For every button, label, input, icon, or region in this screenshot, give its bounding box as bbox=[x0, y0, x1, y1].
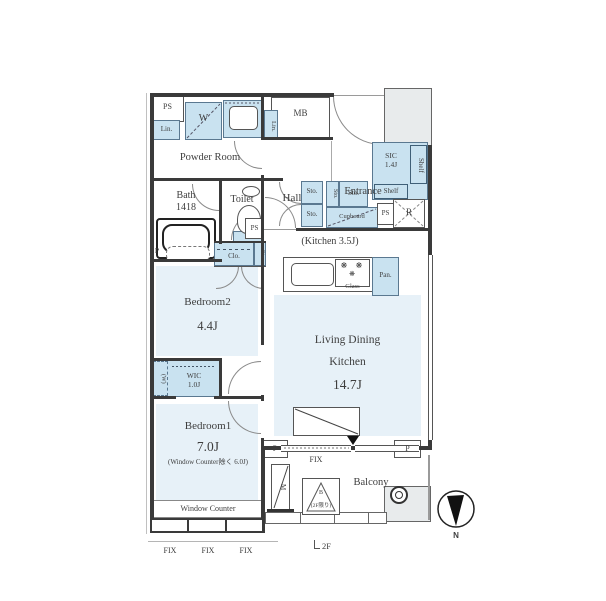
entrance-door-arc bbox=[333, 96, 382, 145]
burner-icon: ❋ bbox=[353, 261, 365, 270]
bedroom2-floor bbox=[156, 266, 258, 356]
wall bbox=[150, 396, 176, 399]
hatch-note: (2F限り) bbox=[302, 503, 340, 509]
mullion bbox=[262, 518, 265, 533]
sic-size: 1.4J bbox=[385, 160, 397, 169]
sto-label: Sto. bbox=[255, 245, 265, 264]
fix-label: FIX bbox=[152, 546, 188, 555]
bedroom1-size: 7.0J bbox=[158, 439, 258, 455]
bedroom2-door-arc bbox=[228, 361, 261, 394]
ps-label: PS bbox=[245, 224, 264, 232]
partition-base bbox=[267, 509, 294, 512]
window-band-east bbox=[428, 255, 433, 440]
floor-marker: 2F bbox=[322, 542, 342, 552]
wic-size: 1.0J bbox=[188, 380, 200, 389]
wall bbox=[219, 178, 222, 244]
mullion bbox=[187, 518, 189, 533]
linen-label: Lin. bbox=[265, 113, 277, 139]
bath-text: Bath bbox=[177, 190, 196, 201]
mullion bbox=[150, 518, 152, 533]
refrigerator-label: R bbox=[393, 207, 425, 217]
fix-label: FIX bbox=[228, 546, 264, 555]
compass bbox=[435, 489, 479, 535]
bedroom1-label: Bedroom1 bbox=[158, 420, 258, 433]
wall bbox=[261, 178, 264, 244]
kitchen-note: (Kitchen 3.5J) bbox=[275, 236, 385, 248]
entrance-threshold bbox=[334, 95, 384, 96]
balcony-label: Balcony bbox=[336, 477, 406, 489]
ldk-label-line1: Living Dining bbox=[280, 334, 415, 347]
ps-label: PS bbox=[151, 102, 184, 111]
vanity-sink bbox=[229, 106, 258, 130]
wall bbox=[296, 228, 431, 231]
ldk-size: 14.7J bbox=[280, 377, 415, 393]
burner-icon: ❋ bbox=[346, 270, 358, 278]
exterior-line bbox=[146, 93, 147, 534]
kitchen-sink bbox=[291, 263, 334, 286]
doorway-threshold bbox=[264, 229, 296, 230]
shelf-label: Shelf bbox=[412, 148, 425, 182]
wall bbox=[150, 93, 154, 518]
window-line bbox=[150, 518, 265, 520]
window-counter-label: Window Counter bbox=[153, 504, 263, 513]
direction-marker bbox=[347, 436, 359, 445]
pipe-label: P bbox=[394, 444, 421, 453]
toilet-label: Toilet bbox=[222, 194, 262, 206]
wall bbox=[428, 145, 432, 255]
wall bbox=[214, 396, 264, 399]
clo-label: Clo. bbox=[214, 252, 254, 260]
window-line bbox=[150, 531, 265, 533]
bedroom1-note: (Window Counter除く 6.0J) bbox=[150, 458, 266, 466]
rail-post bbox=[368, 512, 369, 524]
washer-space-label: (W) bbox=[155, 366, 166, 392]
mb-label: MB bbox=[271, 108, 330, 118]
tv-board bbox=[293, 407, 360, 436]
glass-label: Glass bbox=[335, 283, 370, 290]
burner-icon: ❋ bbox=[338, 261, 350, 270]
balcony-edge bbox=[428, 455, 430, 520]
powder-room-label: Powder Room bbox=[170, 152, 250, 164]
bedroom2-size: 4.4J bbox=[160, 319, 255, 333]
hall-label: Hall bbox=[270, 192, 314, 205]
leader-line bbox=[314, 548, 320, 549]
entrance-label: Entrance bbox=[332, 186, 394, 198]
sto-label: Sto. bbox=[301, 210, 323, 218]
pipe-label: P bbox=[262, 444, 288, 453]
wic-label: WIC 1.0J bbox=[170, 372, 218, 389]
washer-label: W bbox=[185, 113, 222, 125]
hanger-pipe bbox=[217, 249, 251, 250]
fix-label: FIX bbox=[190, 546, 226, 555]
dimension-line bbox=[148, 541, 278, 542]
cupboard-label: Cupboard bbox=[326, 213, 378, 220]
hanger-pipe bbox=[172, 366, 216, 367]
wall bbox=[150, 358, 222, 361]
bath-label: Bath 1418 bbox=[162, 190, 210, 213]
sic-label: SIC 1.4J bbox=[374, 152, 408, 169]
wall bbox=[150, 93, 334, 97]
bath-size: 1418 bbox=[176, 202, 196, 213]
fix-window bbox=[281, 445, 351, 452]
partition-label: M bbox=[274, 476, 287, 498]
bedroom2-label: Bedroom2 bbox=[160, 296, 255, 309]
void-top-right bbox=[384, 88, 432, 147]
hatch-label: B bbox=[312, 490, 330, 497]
wall bbox=[219, 358, 222, 399]
linen-label: Lin. bbox=[153, 125, 180, 133]
fix-label: FIX bbox=[283, 455, 349, 464]
ps-label: PS bbox=[377, 209, 394, 217]
pipe-label: P bbox=[151, 247, 163, 256]
faucet-icon-inner bbox=[395, 491, 403, 499]
mullion bbox=[225, 518, 227, 533]
ldk-label-line2: Kitchen bbox=[280, 356, 415, 369]
wall bbox=[261, 93, 264, 140]
rail-post bbox=[300, 512, 301, 524]
wall bbox=[150, 259, 222, 262]
wall bbox=[214, 241, 266, 243]
north-label: N bbox=[446, 531, 466, 540]
pantry-label: Pan. bbox=[372, 271, 399, 279]
floor-plan: PS W Lin. MB Lin. PS Clo. Sto. P Sto. St… bbox=[0, 0, 606, 601]
